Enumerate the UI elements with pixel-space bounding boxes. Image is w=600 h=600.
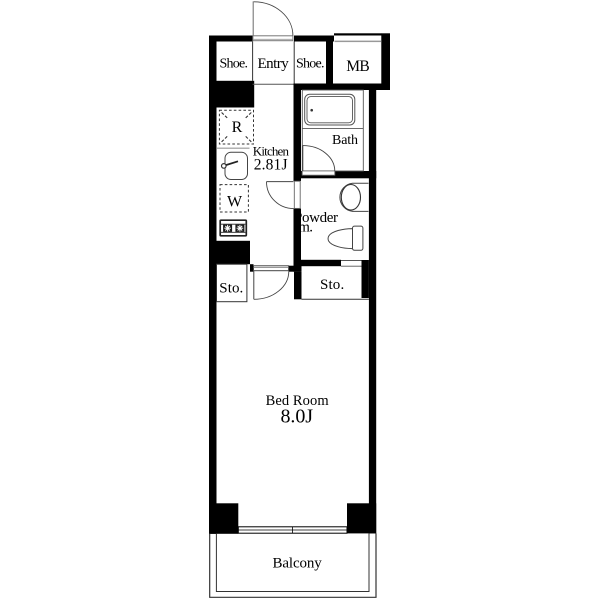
svg-text:Shoe.: Shoe.	[220, 57, 249, 72]
svg-text:Sto.: Sto.	[320, 277, 344, 293]
svg-text:R: R	[232, 119, 243, 136]
svg-text:Balcony: Balcony	[273, 555, 323, 571]
svg-text:2.81J: 2.81J	[254, 156, 288, 173]
svg-text:Shoe.: Shoe.	[296, 57, 325, 72]
svg-text:8.0J: 8.0J	[281, 406, 314, 428]
svg-text:Sto.: Sto.	[219, 281, 243, 297]
svg-text:Bath: Bath	[332, 133, 358, 148]
svg-text:MB: MB	[346, 58, 369, 75]
svg-text:Entry: Entry	[258, 56, 290, 72]
svg-text:rm.: rm.	[294, 220, 313, 236]
svg-text:W: W	[227, 194, 243, 211]
